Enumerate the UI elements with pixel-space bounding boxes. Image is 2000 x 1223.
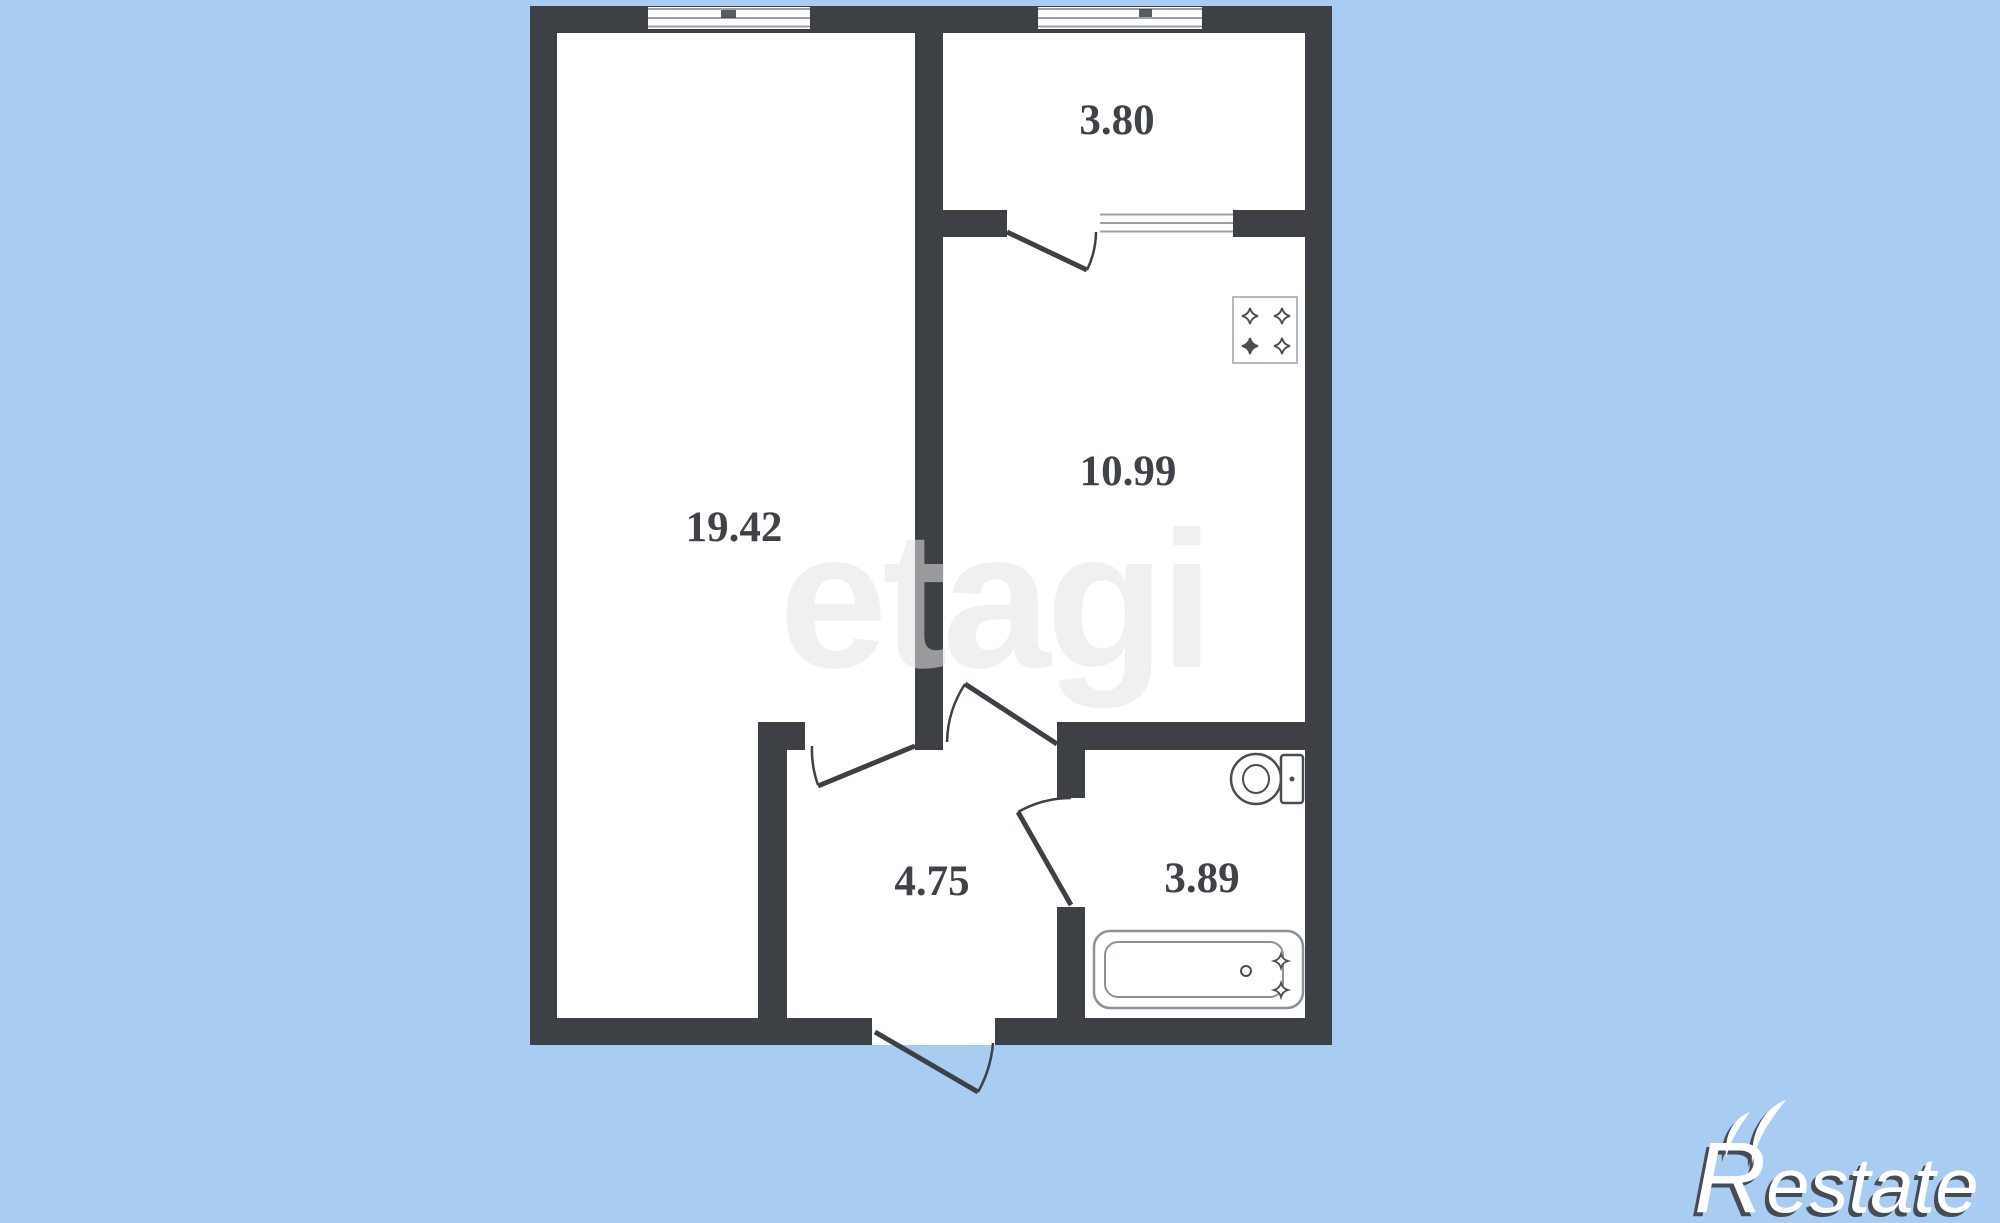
restate-logo-front: Restate [1694, 1100, 1979, 1223]
wall-balcony-left [943, 210, 1007, 237]
room-area-label-hallway: 4.75 [894, 858, 969, 905]
room-area-label-living: 19.42 [686, 504, 783, 551]
wall-bottom-left [530, 1018, 872, 1045]
wall-bath-left-upper [1057, 750, 1085, 798]
wall-balcony-right [1233, 210, 1305, 237]
wall-left [530, 6, 557, 1045]
floorplan-svg: 19.42 3.80 10.99 4.75 3.89 [0, 0, 2000, 1223]
bathtub-icon [1094, 931, 1303, 1008]
wall-bath-top [1057, 722, 1305, 750]
floorplan-canvas: 19.42 3.80 10.99 4.75 3.89 etagi Restate… [0, 0, 2000, 1223]
restate-logo-text: Restate [1694, 1122, 1979, 1223]
restate-logo: Restate Restate [1688, 1086, 2000, 1223]
restate-logo-svg: Restate Restate [1688, 1086, 2000, 1223]
wall-living-hall [758, 750, 787, 1018]
wall-right [1305, 6, 1332, 1045]
window-icon-living [648, 7, 810, 29]
wall-hall-stub [758, 722, 805, 750]
room-area-label-balcony: 3.80 [1079, 97, 1154, 144]
room-area-label-bathroom: 3.89 [1164, 855, 1239, 902]
stove-icon [1233, 297, 1297, 363]
window-icon-balcony [1038, 7, 1202, 29]
window-icon-kitchen [1100, 212, 1233, 234]
room-area-label-kitchen: 10.99 [1080, 448, 1177, 495]
wall-bath-left-lower [1057, 907, 1085, 1018]
wall-living-kitchen [915, 33, 943, 750]
toilet-icon [1231, 754, 1303, 804]
wall-bottom-right [995, 1018, 1332, 1045]
